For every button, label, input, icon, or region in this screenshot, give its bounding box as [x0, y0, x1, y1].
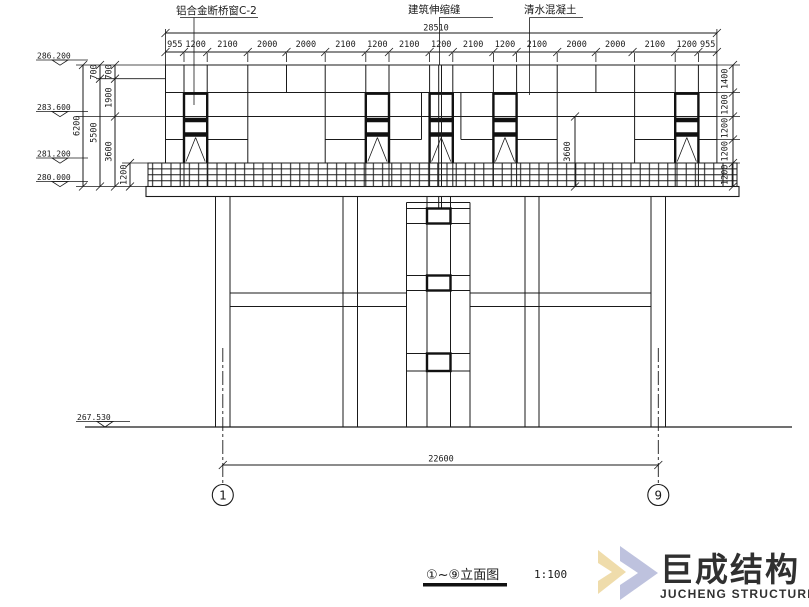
- dim-text: 2100: [217, 40, 237, 50]
- dim-text: 2000: [605, 40, 625, 50]
- dim-text: 1200: [677, 40, 697, 50]
- dim-text: 1200: [721, 94, 731, 114]
- dim-text: 22600: [428, 455, 454, 465]
- elevation-drawing-sheet: 28510 955 1200 2100 2000 2000 2100 1200 …: [0, 0, 809, 607]
- watermark-chinese: 巨成结构: [660, 550, 800, 589]
- elevation-value: 280.000: [37, 173, 71, 182]
- dim-text: 955: [167, 40, 182, 50]
- dim-text: 1200: [367, 40, 387, 50]
- dim-text: 955: [700, 40, 715, 50]
- bottom-dimension: 22600: [219, 455, 663, 470]
- elevation-value: 283.600: [37, 103, 71, 112]
- expansion-joint-label: 建筑伸缩缝: [408, 3, 461, 16]
- axis-number: 1: [219, 488, 227, 503]
- dim-text: 1200: [721, 165, 731, 185]
- dim-text: 700: [105, 64, 115, 79]
- title-scale: 1:100: [534, 568, 567, 581]
- tie-beam: [230, 293, 651, 307]
- dim-text: 3600: [105, 141, 115, 161]
- elevation-value: 281.200: [37, 150, 71, 159]
- dim-text: 2100: [463, 40, 483, 50]
- center-braced-mast: [407, 197, 471, 428]
- platform-slab: [146, 187, 739, 197]
- dim-text: 2100: [335, 40, 355, 50]
- watermark-logo: 巨成结构 JUCHENG STRUCTURE: [598, 546, 809, 601]
- top-overall-dimension: 28510: [162, 24, 721, 38]
- walkway-truss-band: [148, 163, 737, 187]
- support-columns: [216, 197, 666, 428]
- dim-text: 1200: [431, 40, 451, 50]
- dim-text: 1200: [495, 40, 515, 50]
- dim-text: 2000: [257, 40, 277, 50]
- dim-text: 3600: [563, 141, 573, 161]
- dim-text: 1200: [721, 141, 731, 161]
- dim-text: 2000: [296, 40, 316, 50]
- title-text: ①~⑨立面图: [426, 568, 499, 583]
- dim-text: 1200: [120, 165, 130, 185]
- elevation-value: 286.200: [37, 52, 71, 61]
- concrete-label: 清水混凝土: [524, 3, 577, 16]
- dim-text: 1200: [185, 40, 205, 50]
- elevation-value: 267.530: [77, 413, 111, 422]
- top-segment-dimension: 955 1200 2100 2000 2000 2100 1200 2100 1…: [162, 29, 721, 65]
- dim-text: 2100: [645, 40, 665, 50]
- ground-elevation-marker: 267.530: [76, 413, 130, 427]
- title-underline: [423, 583, 507, 587]
- watermark-english: JUCHENG STRUCTURE: [660, 587, 809, 601]
- dim-text: 700: [90, 64, 100, 79]
- logo-blue-arrow-icon: [620, 546, 658, 600]
- dim-text: 2100: [399, 40, 419, 50]
- dim-text: 6200: [73, 116, 83, 136]
- dim-text: 1900: [105, 87, 115, 107]
- dim-text: 5500: [90, 122, 100, 142]
- dim-text: 1200: [721, 118, 731, 138]
- drawing-title: ①~⑨立面图 1:100: [423, 568, 567, 587]
- window-callout-label: 铝合金断桥窗C-2: [176, 4, 257, 17]
- dim-text: 1400: [721, 69, 731, 89]
- axis-number: 9: [655, 488, 663, 503]
- cad-elevation-canvas: 28510 955 1200 2100 2000 2000 2100 1200 …: [0, 0, 809, 607]
- dim-text: 2000: [566, 40, 586, 50]
- overall-dim-text: 28510: [423, 24, 449, 34]
- callout-labels: 铝合金断桥窗C-2 建筑伸缩缝 清水混凝土: [176, 3, 583, 105]
